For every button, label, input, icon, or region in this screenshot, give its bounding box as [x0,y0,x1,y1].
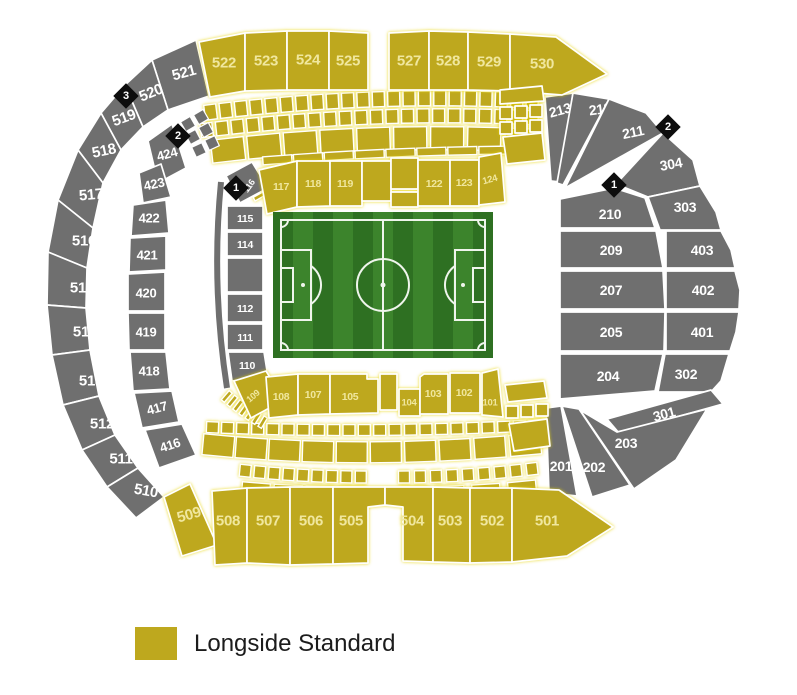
pitch-stripe [413,212,433,358]
seat-block [498,421,510,432]
seat-block [277,115,290,130]
section-block[interactable] [530,120,542,132]
seat-block [215,121,228,136]
section-529[interactable] [468,32,510,91]
section-114 [227,232,263,256]
seat-block [451,423,463,434]
seat-block [283,130,318,155]
seat-block [202,434,235,458]
section-416 [145,424,196,468]
section-101[interactable] [482,369,503,417]
seat-block [439,439,471,462]
seat-block [357,127,391,151]
seat-block [420,424,432,435]
legend-swatch-longside-standard [135,627,177,660]
seat-block [324,151,353,161]
seat-block [282,424,294,435]
section-205 [560,312,665,351]
seat-block [494,466,506,479]
seat-block [404,440,436,462]
section-401 [666,312,739,351]
section-527[interactable] [389,31,429,90]
seat-block [435,423,447,434]
section-420 [128,272,165,311]
seat-block [389,424,401,435]
section-103[interactable] [420,374,448,414]
seat-block [268,439,300,461]
seat-block [474,436,506,459]
section-block[interactable] [515,121,527,133]
section-523[interactable] [245,31,287,91]
pitch-centre-spot [381,283,386,288]
seat-block [302,441,334,463]
seat-block [478,467,490,480]
section-514 [47,305,90,355]
seat-block [414,471,425,483]
section-block[interactable] [391,158,418,189]
seat-block [355,149,384,158]
seat-block [265,98,278,114]
section-421 [129,236,166,272]
section-508[interactable] [212,488,247,565]
access-marker-number: 1 [233,182,239,194]
seat-block [430,470,441,482]
section-block[interactable] [530,105,542,117]
section-block[interactable] [503,133,545,164]
section-124[interactable] [479,153,505,205]
access-marker-number: 2 [665,121,671,133]
pitch-stripe [313,212,333,358]
section-403 [666,231,735,268]
seat-block [394,127,427,150]
seat-block [297,424,309,435]
seat-block [308,113,321,128]
section-122[interactable] [418,160,450,206]
seat-block [293,114,306,129]
section-302 [658,354,729,392]
section-119[interactable] [330,161,362,206]
football-pitch [273,212,493,358]
section-204 [560,354,663,399]
seat-block [246,118,259,133]
seat-block [374,424,386,435]
section-102[interactable] [450,373,480,413]
section-115 [227,206,263,230]
seat-block [341,471,352,483]
seat-block [398,471,409,483]
section-207 [560,271,665,309]
section-417 [134,391,179,428]
seat-block [386,148,415,157]
section-118[interactable] [297,161,330,207]
section-112 [227,294,263,322]
seat-block [479,109,491,123]
gray-seat-block [192,143,207,158]
seat-block [250,99,263,115]
seat-block [355,110,368,124]
seat-block [254,466,266,479]
seat-block [526,462,538,475]
access-marker-number: 2 [175,130,181,142]
seat-block [320,128,354,153]
seat-block [326,470,337,482]
seat-block [446,469,458,482]
pitch-stripe [333,212,353,358]
stadium-map: 5215205195185175165155145135125115102132… [0,0,797,610]
seat-block [479,146,508,154]
seat-block [231,119,244,134]
seat-block [311,94,324,110]
seat-block [462,468,474,481]
seat-block [386,109,398,123]
section-105[interactable] [330,374,378,414]
section-418 [130,352,170,391]
seat-block [355,471,366,483]
seat-block [464,91,476,106]
section-402 [666,271,740,309]
section-block [227,258,263,292]
section-419 [128,313,165,350]
section-528[interactable] [429,31,468,90]
seat-block [219,102,233,118]
section-block[interactable] [380,374,397,410]
section-505[interactable] [333,487,385,564]
seat-block [312,470,323,482]
seat-block [434,91,446,106]
seat-block [370,110,382,124]
section-209 [560,231,663,268]
seat-block [328,424,340,435]
seat-block [235,437,267,460]
seat-block [343,425,355,436]
section-block[interactable] [505,381,547,402]
seat-block [283,468,295,481]
pitch-stripe [433,212,453,358]
section-123[interactable] [450,160,479,206]
seat-block [221,422,233,433]
access-marker-number: 3 [123,90,129,102]
section-506[interactable] [290,487,333,565]
section-513 [52,350,99,405]
pitch-stripe [473,212,493,358]
section-104[interactable] [399,389,420,416]
access-marker-number: 1 [611,179,617,191]
section-524[interactable] [287,31,329,90]
seat-block [448,109,460,123]
section-block[interactable] [362,161,391,201]
section-block[interactable] [506,406,518,418]
section-block[interactable] [515,106,527,118]
seat-block [267,424,279,435]
section-422 [131,200,169,236]
seat-block [372,92,384,107]
legend-label: Longside Standard [194,630,396,658]
seat-block [357,92,370,107]
seat-block [341,93,354,109]
seat-block [403,91,415,106]
section-525[interactable] [329,31,368,90]
seat-block [339,111,352,126]
seat-block [466,422,478,433]
section-block[interactable] [500,122,512,134]
seat-block [510,464,522,477]
seat-block [295,95,308,111]
seat-block [417,109,429,123]
seat-block [326,93,339,109]
section-block[interactable] [536,404,548,416]
seat-block [297,469,309,482]
section-509[interactable] [164,484,217,556]
seat-block [388,91,400,106]
seat-block [262,116,275,131]
section-block[interactable] [509,419,550,451]
seat-block [449,91,461,106]
seat-block [234,101,248,117]
seat-block [358,425,370,436]
section-block[interactable] [521,405,533,417]
seat-block [312,424,324,435]
section-108[interactable] [266,374,298,418]
section-501[interactable] [512,488,613,562]
section-507[interactable] [247,487,290,565]
pitch-penalty-spot-right [461,283,465,287]
seat-block [324,112,337,127]
seat-block [433,109,445,123]
section-117[interactable] [259,161,297,214]
seat-block [480,91,492,106]
section-111 [227,324,263,350]
seat-block [280,96,293,112]
section-504[interactable] [385,487,433,562]
seat-block [464,109,476,123]
seat-block [417,147,446,156]
section-530[interactable] [510,34,607,95]
seat-block [236,423,248,434]
section-107[interactable] [298,374,330,415]
inner-bowl-rim [217,182,227,388]
seat-block [268,467,280,480]
seat-map-page: 5215205195185175165155145135125115102132… [0,0,797,695]
section-503[interactable] [433,487,470,563]
section-502[interactable] [470,488,512,563]
seat-block [482,422,494,433]
seat-block [239,464,251,477]
legend: Longside Standard [135,627,396,660]
seat-block [206,422,218,433]
seat-block [370,441,401,462]
pitch-penalty-spot-left [301,283,305,287]
seat-block [336,442,367,463]
seat-block [418,91,430,106]
section-block[interactable] [500,86,544,104]
pitch-stripe [273,212,293,358]
section-block[interactable] [500,107,512,119]
section-block[interactable] [391,192,418,207]
seat-block [448,147,477,156]
seat-block [401,109,413,123]
seat-block [404,424,416,435]
